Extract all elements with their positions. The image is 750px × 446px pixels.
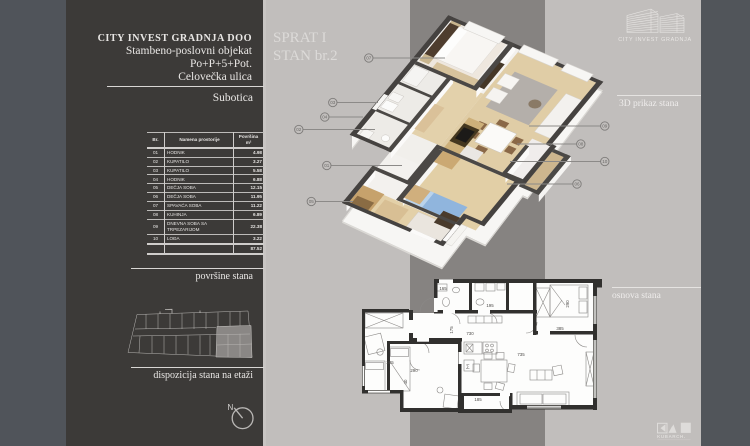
svg-text:735: 735 (517, 352, 525, 357)
svg-text:08: 08 (578, 142, 584, 147)
svg-text:Σ: Σ (466, 365, 470, 371)
svg-text:165: 165 (439, 286, 447, 291)
svg-text:02: 02 (296, 127, 302, 132)
svg-text:09: 09 (602, 124, 608, 129)
svg-text:290: 290 (565, 300, 570, 308)
svg-text:265: 265 (386, 360, 394, 365)
svg-text:04: 04 (322, 115, 328, 120)
svg-text:10: 10 (602, 159, 608, 164)
svg-text:290: 290 (410, 368, 418, 373)
svg-text:175: 175 (449, 326, 454, 334)
svg-text:195: 195 (486, 303, 494, 308)
svg-text:40: 40 (403, 379, 408, 384)
svg-text:03: 03 (330, 100, 336, 105)
svg-text:06: 06 (574, 182, 580, 187)
svg-text:05: 05 (309, 199, 315, 204)
svg-text:185: 185 (474, 397, 482, 402)
svg-text:01: 01 (324, 163, 330, 168)
svg-text:730: 730 (466, 331, 474, 336)
svg-text:07: 07 (366, 56, 372, 61)
svg-text:385: 385 (556, 326, 564, 331)
